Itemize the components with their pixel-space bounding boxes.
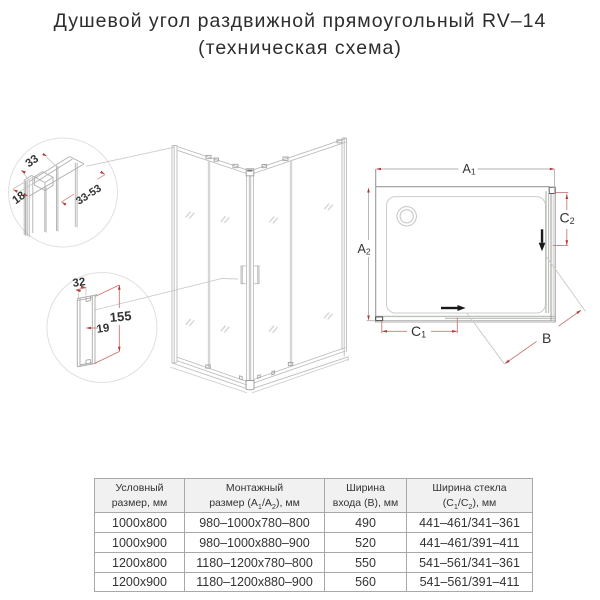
- svg-text:19: 19: [96, 322, 110, 336]
- svg-text:33-53: 33-53: [74, 182, 104, 207]
- svg-text:32: 32: [72, 276, 86, 290]
- svg-text:B: B: [542, 330, 551, 346]
- svg-text:C2: C2: [560, 210, 575, 227]
- svg-text:A2: A2: [358, 242, 371, 257]
- svg-text:C1: C1: [411, 323, 426, 340]
- svg-text:33: 33: [24, 153, 41, 170]
- svg-text:A1: A1: [463, 162, 476, 177]
- svg-text:155: 155: [109, 308, 132, 325]
